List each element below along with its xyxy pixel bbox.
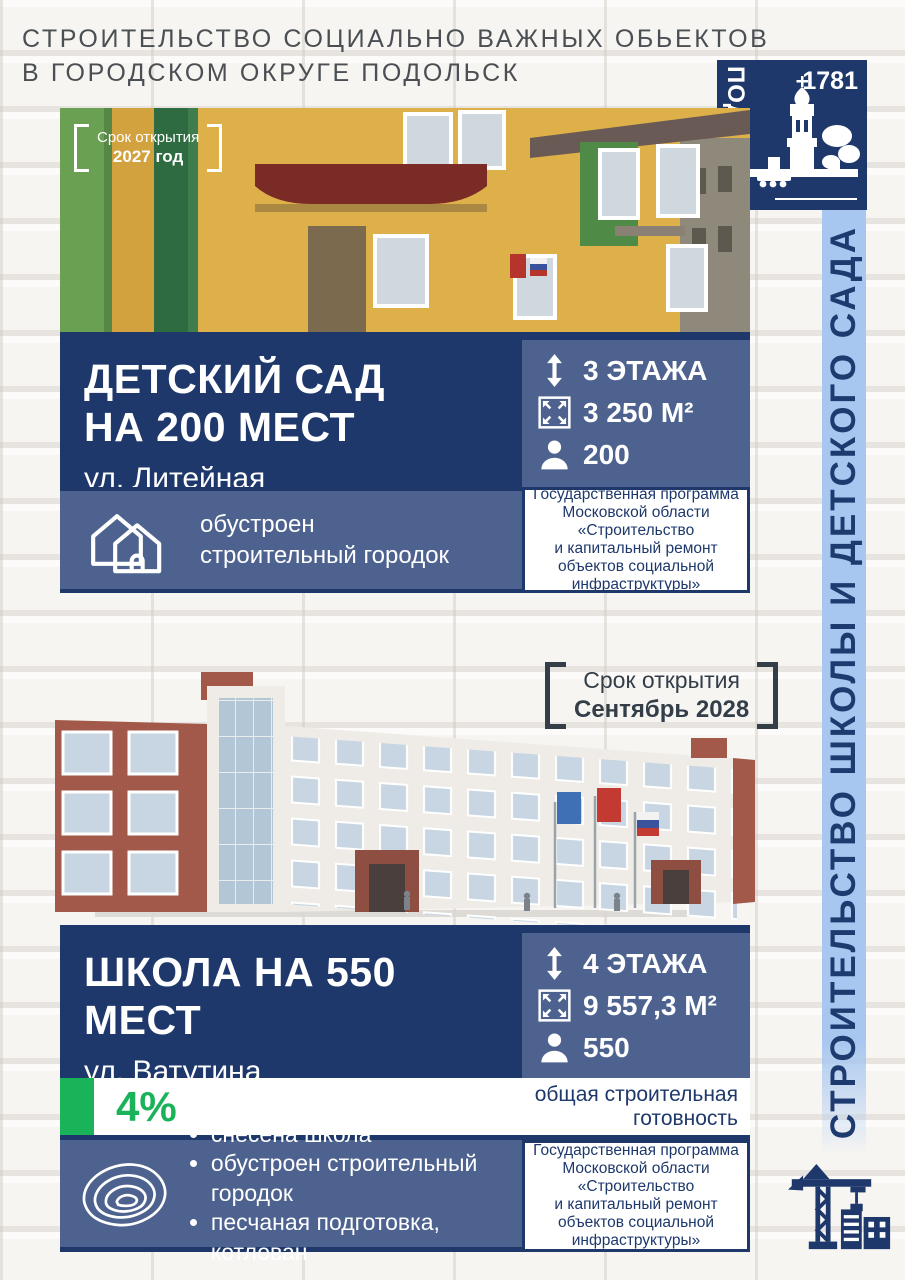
bracket-left-icon [74,124,89,172]
logo-underline [775,198,857,200]
card1-status-text: обустроен строительный городок [200,509,450,571]
program-box-card2: Государственная программа Московской обл… [522,1140,750,1252]
capacity-icon [538,1031,571,1064]
construction-crane-icon [788,1158,892,1258]
opening-label: Срок открытия [97,129,199,146]
stat-floors-value: 3 ЭТАЖА [583,355,707,387]
stat-floors: 3 ЭТАЖА [538,354,750,387]
card2-title-row: ШКОЛА НА 550 МЕСТ ул. Ватутина 4 ЭТАЖА [60,925,750,1078]
progress-bar-fill [60,1078,94,1135]
card2-title: ШКОЛА НА 550 МЕСТ [84,949,522,1045]
stat-capacity-value: 200 [583,439,630,471]
infographic-poster: СТРОИТЕЛЬСТВО СОЦИАЛЬНО ВАЖНЫХ ОБЬЕКТОВ … [0,0,905,1280]
construction-camp-icon [84,502,172,578]
church-silhouette-icon [745,74,863,196]
opening-label: Срок открытия [574,667,749,694]
card2-title-block: ШКОЛА НА 550 МЕСТ ул. Ватутина [60,925,522,1078]
stat-floors: 4 ЭТАЖА [538,947,750,980]
page-title: СТРОИТЕЛЬСТВО СОЦИАЛЬНО ВАЖНЫХ ОБЬЕКТОВ … [22,22,769,90]
opening-value: Сентябрь 2028 [574,696,749,724]
stat-capacity: 550 [538,1031,750,1064]
page-title-line1: СТРОИТЕЛЬСТВО СОЦИАЛЬНО ВАЖНЫХ ОБЬЕКТОВ [22,22,769,56]
program-box-card1: Государственная программа Московской обл… [522,487,750,593]
stat-area: 3 250 М² [538,396,750,429]
program-note: Государственная программа Московской обл… [533,486,739,594]
bracket-right-icon [207,124,222,172]
vertical-ribbon: СТРОИТЕЛЬСТВО ШКОЛЫ И ДЕТСКОГО САДА [822,210,866,1155]
bracket-right-icon [757,662,778,729]
card1-title: ДЕТСКИЙ САД НА 200 МЕСТ [84,356,522,452]
milestone-item: песчаная подготовка, котлован [211,1208,522,1267]
card1-info-row: обустроен строительный городок Государст… [60,487,750,593]
stat-area-value: 3 250 М² [583,397,694,429]
milestone-item: снесена школа [211,1120,522,1149]
stat-floors-value: 4 ЭТАЖА [583,948,707,980]
ribbon-text: СТРОИТЕЛЬСТВО ШКОЛЫ И ДЕТСКОГО САДА [824,225,864,1139]
card1-title-row: ДЕТСКИЙ САД НА 200 МЕСТ ул. Литейная 3 Э… [60,332,750,487]
capacity-icon [538,438,571,471]
program-note: Государственная программа Московской обл… [533,1142,739,1250]
stat-capacity: 200 [538,438,750,471]
card2-milestones-list: снесена школа обустроен строительный гор… [183,1120,522,1267]
area-icon [538,989,571,1022]
opening-value: 2027 год [97,147,199,167]
stat-area: 9 557,3 М² [538,989,750,1022]
floors-icon [538,947,571,980]
opening-date-card2: Срок открытия Сентябрь 2028 [545,662,778,729]
stat-capacity-value: 550 [583,1032,630,1064]
bracket-left-icon [545,662,566,729]
page-title-line2: В ГОРОДСКОМ ОКРУГЕ ПОДОЛЬСК [22,56,769,90]
card1-stats-panel: 3 ЭТАЖА 3 250 М² [522,332,750,487]
card2-status-block: снесена школа обустроен строительный гор… [60,1140,522,1252]
opening-date-card1: Срок открытия 2027 год [74,124,222,172]
excavation-pit-icon [78,1152,171,1236]
floors-icon [538,354,571,387]
progress-percent: 4% [116,1083,177,1131]
card2-info-row: снесена школа обустроен строительный гор… [60,1140,750,1252]
card1-title-block: ДЕТСКИЙ САД НА 200 МЕСТ ул. Литейная [60,332,522,487]
progress-label: общая строительная готовность [535,1083,750,1130]
milestone-item: обустроен строительный городок [211,1149,522,1208]
card1-status-block: обустроен строительный городок [60,487,522,593]
card2-stats-panel: 4 ЭТАЖА 9 557,3 М² [522,925,750,1078]
stat-area-value: 9 557,3 М² [583,990,717,1022]
area-icon [538,396,571,429]
